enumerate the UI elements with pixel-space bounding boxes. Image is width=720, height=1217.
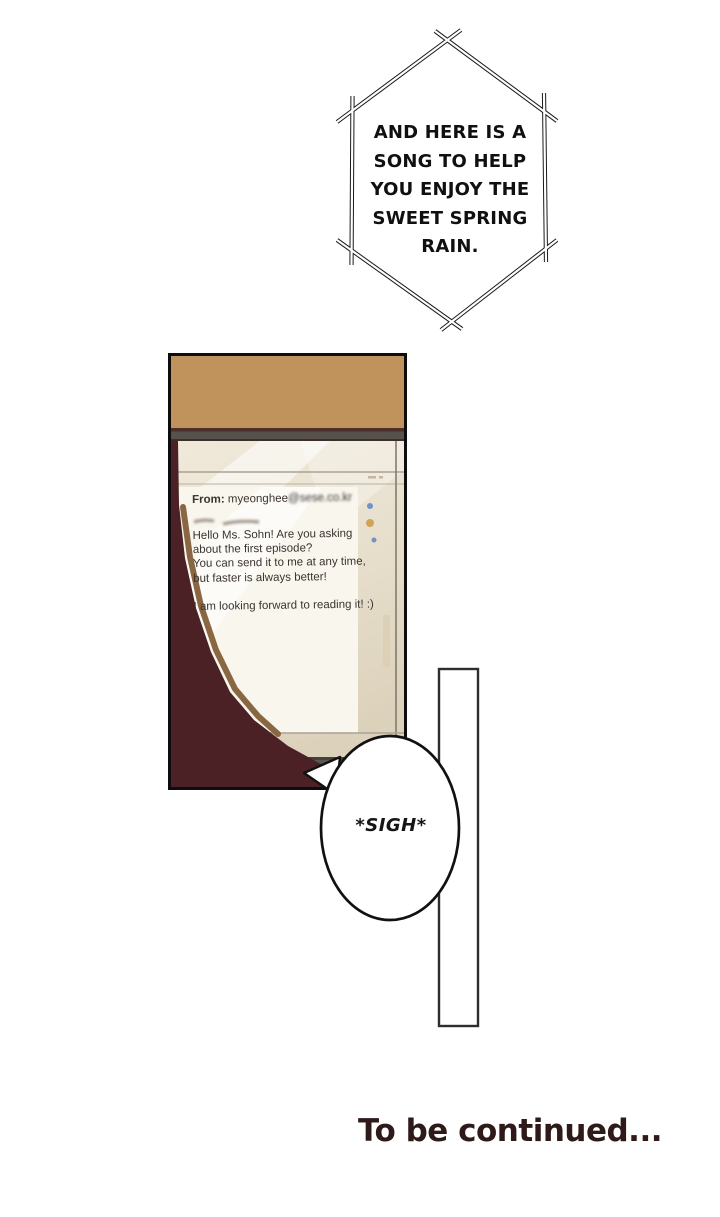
hexagon-bubble-text: AND HERE IS A SONG TO HELP YOU ENJOY THE… [350, 119, 550, 262]
email-body-line: You can send it to me at any time, [193, 555, 379, 572]
email-body-line: but faster is always better! [193, 569, 379, 586]
sigh-text: *SIGH* [330, 815, 452, 836]
screen-top-bezel-shadow [171, 439, 404, 441]
email-body-line: I am looking forward to reading it! :) [193, 597, 379, 614]
hanging-strip [383, 615, 390, 667]
email-body-line: Hello Ms. Sohn! Are you asking [192, 526, 378, 543]
email-content: From: myeonghee@sese.co.kr Hello Ms. Soh… [192, 491, 380, 614]
hexagon-bubble-line: SWEET SPRING [350, 205, 550, 234]
email-from-name: myeonghee [225, 493, 288, 506]
screen-top-bezel-edge [171, 428, 404, 432]
comic-page: AND HERE IS A SONG TO HELP YOU ENJOY THE… [0, 0, 720, 1217]
to-be-continued-text: To be continued... [358, 1113, 662, 1149]
email-from-domain: @sese.co.kr [288, 492, 352, 505]
hexagon-bubble-line: RAIN. [350, 233, 550, 262]
hexagon-bubble-line: AND HERE IS A [350, 119, 550, 148]
email-body: Hello Ms. Sohn! Are you asking about the… [192, 526, 379, 614]
email-from-line: From: myeonghee@sese.co.kr [192, 491, 378, 506]
toolbar-tick-icon-2 [379, 476, 383, 479]
email-from-label: From: [192, 494, 225, 506]
wall-texture-shade [171, 356, 404, 429]
hexagon-bubble-line: SONG TO HELP [350, 148, 550, 177]
hexagon-bubble-line: YOU ENJOY THE [350, 176, 550, 205]
toolbar-tick-icon [368, 476, 376, 479]
